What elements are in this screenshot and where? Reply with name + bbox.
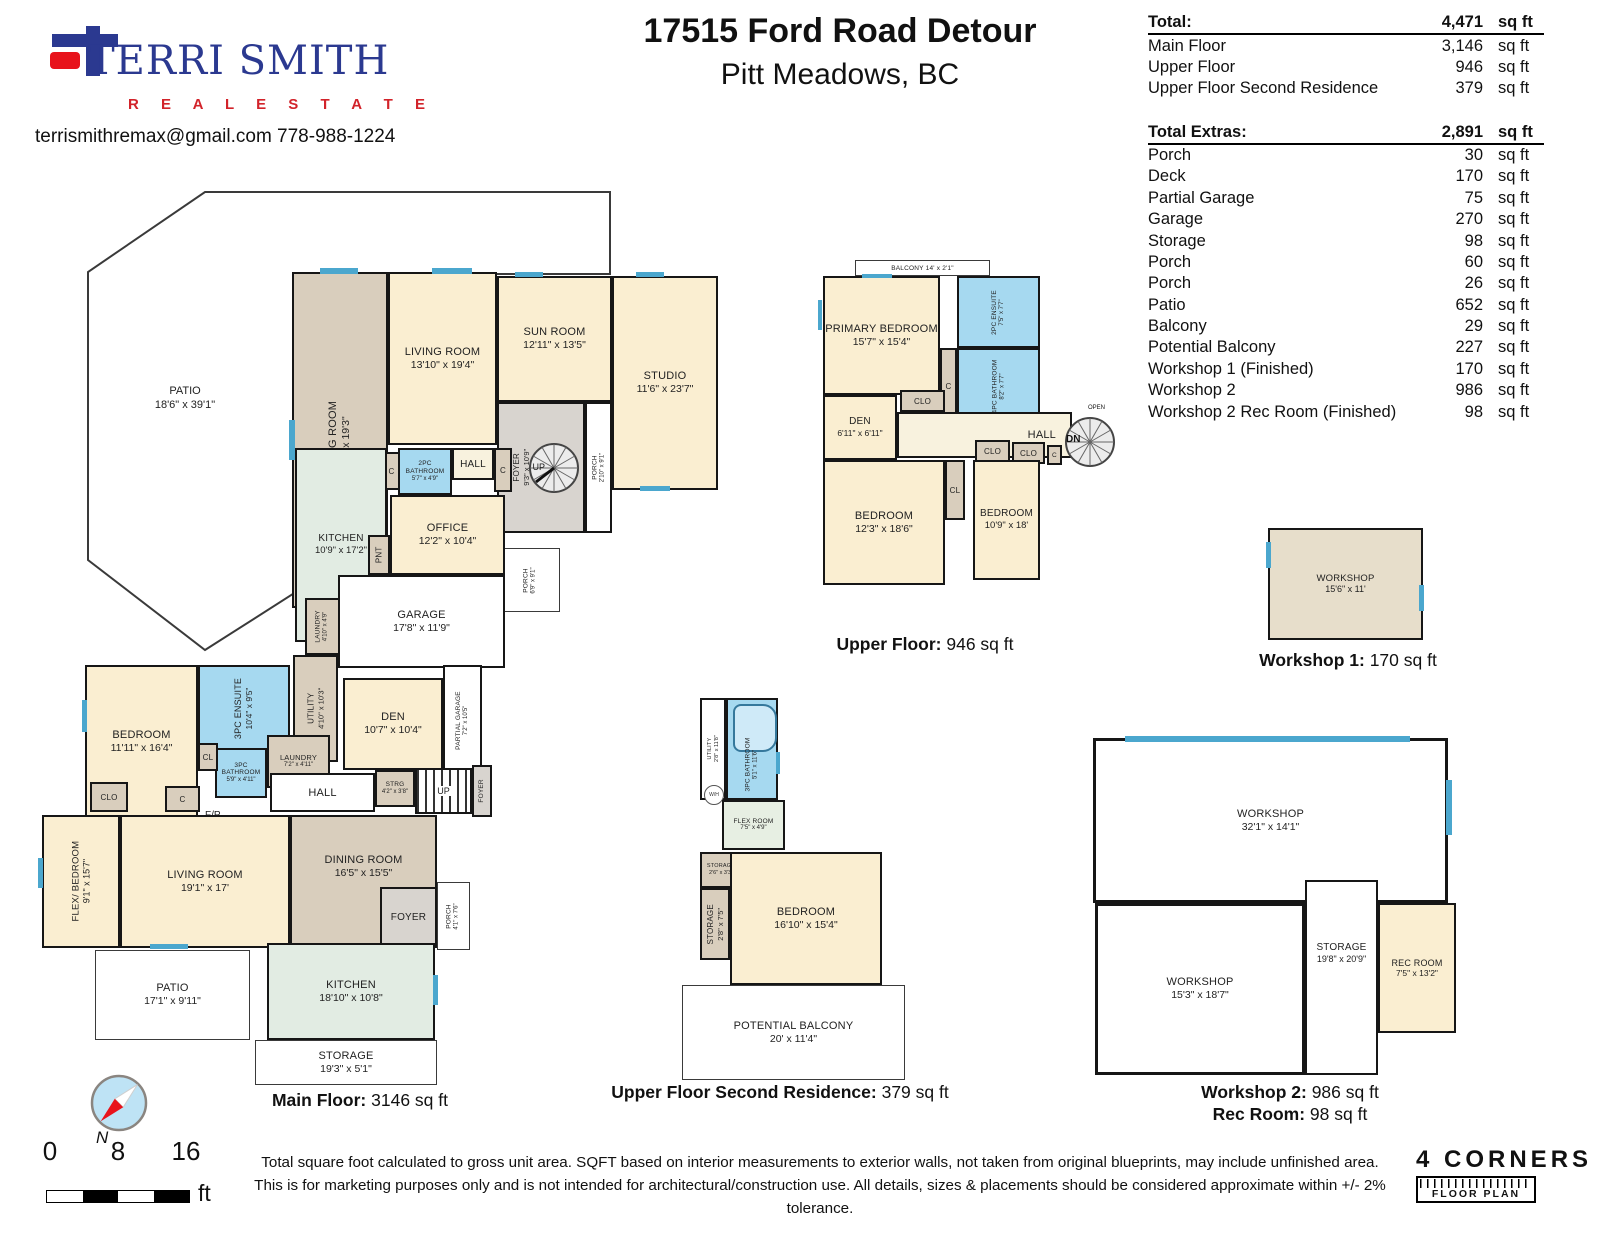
- summary-total-unit: sq ft: [1483, 13, 1544, 32]
- room-studio: STUDIO11'6" x 23'7": [612, 276, 718, 490]
- summary-row-unit: sq ft: [1483, 146, 1544, 165]
- room-partial-garage: PARTIAL GARAGE7'2" x 10'5": [443, 665, 482, 775]
- second-residence-plan: UTILITY2'8" x 11'8" 3PC BATHROOM5'1" x 1…: [680, 695, 920, 1085]
- summary-extra-row: Porch 60 sq ft: [1148, 252, 1544, 273]
- summary-row-value: 29: [1425, 317, 1483, 336]
- disclaimer-line1: Total square foot calculated to gross un…: [250, 1152, 1390, 1175]
- stair-dn-label: DN: [1066, 434, 1080, 445]
- summary-row-value: 652: [1425, 296, 1483, 315]
- room-workshop2-top: WORKSHOP32'1" x 14'1": [1093, 738, 1448, 903]
- room-patio-lower: PATIO17'1" x 9'11": [95, 950, 250, 1040]
- summary-row-value: 75: [1425, 189, 1483, 208]
- scale-tick-0: 0: [38, 1136, 62, 1167]
- room-porch-lower: PORCH4'1" x 7'6": [437, 882, 470, 950]
- room-cl-upper: CL: [945, 460, 965, 520]
- room-storage-sr: STORAGE2'8" x 7'5": [700, 888, 730, 960]
- summary-extra-row: Storage 98 sq ft: [1148, 230, 1544, 251]
- summary-extra-row: Workshop 2 986 sq ft: [1148, 380, 1544, 401]
- room-porch-angled: PORCH6'9" x 9'1": [500, 548, 560, 612]
- window-mark: [432, 268, 472, 274]
- stair-up-label: UP: [532, 462, 545, 472]
- window-mark: [862, 274, 892, 278]
- summary-extras-label: Total Extras:: [1148, 123, 1425, 142]
- room-hall-lower: HALL: [270, 773, 375, 812]
- summary-row-value: 946: [1425, 58, 1483, 77]
- workshop2-plan: WORKSHOP32'1" x 14'1" WORKSHOP15'3" x 18…: [1093, 735, 1463, 1080]
- property-city: Pitt Meadows, BC: [560, 58, 1120, 92]
- room-clo: CLO: [90, 782, 128, 812]
- main-floor-plan: PATIO 18'6" x 39'1" DINING ROOM11' x 19'…: [30, 185, 730, 1090]
- window-mark: [1125, 736, 1410, 742]
- room-workshop2-storage: STORAGE19'8" x 20'9": [1305, 880, 1378, 1075]
- summary-floor-row: Upper Floor Second Residence 379 sq ft: [1148, 78, 1544, 99]
- summary-floor-rows: Main Floor 3,146 sq ft Upper Floor 946 s…: [1148, 35, 1544, 99]
- window-mark: [38, 858, 43, 888]
- summary-row-unit: sq ft: [1483, 167, 1544, 186]
- summary-floor-row: Main Floor 3,146 sq ft: [1148, 35, 1544, 56]
- room-bedroom-upper2: BEDROOM10'9" x 18': [973, 460, 1040, 580]
- room-kitchen-lower: KITCHEN18'10" x 10'8": [267, 943, 435, 1040]
- brand-tagline: R E A L E S T A T E: [128, 96, 434, 113]
- summary-row-unit: sq ft: [1483, 79, 1544, 98]
- room-hall-upper: HALL: [452, 448, 494, 480]
- four-corners-sub: FLOOR PLAN: [1418, 1188, 1534, 1200]
- window-mark: [289, 420, 295, 460]
- summary-row-label: Porch: [1148, 274, 1425, 293]
- room-flexroom-sr: FLEX ROOM7'5" x 4'9": [722, 800, 785, 850]
- summary-row-label: Workshop 2: [1148, 381, 1425, 400]
- four-corners-ruler-icon: FLOOR PLAN: [1416, 1176, 1536, 1203]
- summary-extra-row: Workshop 2 Rec Room (Finished) 98 sq ft: [1148, 401, 1544, 422]
- window-mark: [640, 486, 670, 491]
- brand-name: TERRI SMITH: [88, 38, 389, 84]
- summary-row-value: 170: [1425, 167, 1483, 186]
- summary-row-unit: sq ft: [1483, 253, 1544, 272]
- workshop2-recroom-caption: Rec Room: 98 sq ft: [1180, 1104, 1400, 1125]
- floor-plan-page: TERRI SMITH R E A L E S T A T E terrismi…: [0, 0, 1600, 1237]
- window-mark: [1419, 585, 1424, 611]
- summary-row-label: Balcony: [1148, 317, 1425, 336]
- summary-row-value: 30: [1425, 146, 1483, 165]
- window-mark: [82, 700, 87, 732]
- room-c-upper2: C: [1047, 445, 1062, 465]
- room-foyer-stairs: FOYER: [472, 765, 492, 817]
- summary-gap: [1148, 100, 1544, 122]
- upper-floor-plan: BALCONY 14' x 2'1" PRIMARY BEDROOM15'7" …: [820, 258, 1120, 593]
- window-mark: [1266, 542, 1271, 568]
- summary-extra-row: Balcony 29 sq ft: [1148, 316, 1544, 337]
- summary-row-label: Upper Floor Second Residence: [1148, 79, 1425, 98]
- four-corners-name: 4 CORNERS: [1416, 1146, 1536, 1174]
- room-foyer-lower: FOYER: [380, 887, 437, 948]
- room-patio-upper: PATIO 18'6" x 39'1": [100, 385, 270, 413]
- brand-contact: terrismithremax@gmail.com 778-988-1224: [35, 126, 395, 148]
- summary-extras-unit: sq ft: [1483, 123, 1544, 142]
- brand-sign-red-icon: [50, 52, 80, 69]
- room-ensuite-2pc: 2PC ENSUITE7'5" x 7'7": [957, 276, 1040, 348]
- summary-row-unit: sq ft: [1483, 210, 1544, 229]
- summary-row-label: Patio: [1148, 296, 1425, 315]
- four-corners-logo: 4 CORNERS FLOOR PLAN: [1416, 1146, 1536, 1203]
- scale-bar: [46, 1190, 190, 1203]
- room-primary-bedroom: PRIMARY BEDROOM15'7" x 15'4": [823, 276, 940, 395]
- summary-row-label: Storage: [1148, 232, 1425, 251]
- summary-row-unit: sq ft: [1483, 338, 1544, 357]
- summary-extra-row: Potential Balcony 227 sq ft: [1148, 337, 1544, 358]
- scale-tick-16: 16: [168, 1136, 204, 1167]
- summary-row-value: 270: [1425, 210, 1483, 229]
- room-den-upper: DEN6'11" x 6'11": [823, 395, 897, 460]
- ruler-ticks-icon: [1420, 1179, 1532, 1188]
- summary-row-value: 379: [1425, 79, 1483, 98]
- room-closet-c2: C: [494, 448, 512, 492]
- summary-row-value: 60: [1425, 253, 1483, 272]
- summary-extra-rows: Porch 30 sq ft Deck 170 sq ft Partial Ga…: [1148, 145, 1544, 423]
- room-den: DEN10'7" x 10'4": [343, 678, 443, 770]
- window-mark: [320, 268, 358, 274]
- water-heater-icon: W/H: [704, 785, 724, 805]
- room-clo-upper1: CLO: [900, 390, 945, 412]
- window-mark: [150, 944, 188, 949]
- brand-logo: TERRI SMITH R E A L E S T A T E terrismi…: [0, 0, 460, 160]
- room-storage-lower: STORAGE19'3" x 5'1": [255, 1040, 437, 1085]
- room-bath-3pc: 3PC BATHROOM5'9" x 4'11": [215, 748, 267, 798]
- summary-row-value: 98: [1425, 403, 1483, 422]
- main-floor-caption: Main Floor: 3146 sq ft: [230, 1090, 490, 1111]
- summary-row-label: Porch: [1148, 253, 1425, 272]
- room-garage: GARAGE17'8" x 11'9": [338, 575, 505, 668]
- summary-row-label: Workshop 2 Rec Room (Finished): [1148, 403, 1425, 422]
- workshop1-plan: WORKSHOP15'6" x 11': [1268, 528, 1428, 648]
- summary-total-label: Total:: [1148, 13, 1425, 32]
- summary-total-row: Total: 4,471 sq ft: [1148, 12, 1544, 35]
- summary-row-value: 3,146: [1425, 37, 1483, 56]
- room-pantry: PNT: [368, 535, 390, 575]
- summary-row-unit: sq ft: [1483, 381, 1544, 400]
- summary-row-unit: sq ft: [1483, 296, 1544, 315]
- window-mark: [515, 272, 543, 277]
- open-label: OPEN: [1088, 405, 1105, 411]
- summary-row-unit: sq ft: [1483, 232, 1544, 251]
- workshop2-caption: Workshop 2: 986 sq ft: [1180, 1082, 1400, 1103]
- disclaimer: Total square foot calculated to gross un…: [250, 1152, 1390, 1220]
- compass-icon: [88, 1072, 150, 1134]
- scale-unit: ft: [198, 1180, 211, 1207]
- summary-row-label: Porch: [1148, 146, 1425, 165]
- summary-total-value: 4,471: [1425, 13, 1483, 32]
- summary-row-value: 227: [1425, 338, 1483, 357]
- room-strg: STRG4'2" x 3'8": [375, 770, 415, 807]
- scale-tick-8: 8: [106, 1136, 130, 1167]
- window-mark: [818, 300, 822, 330]
- room-cl: CL: [198, 743, 218, 771]
- summary-row-label: Deck: [1148, 167, 1425, 186]
- room-flex-bedroom: FLEX/ BEDROOM9'1" x 15'7": [42, 815, 120, 948]
- summary-extra-row: Porch 30 sq ft: [1148, 145, 1544, 166]
- summary-row-unit: sq ft: [1483, 58, 1544, 77]
- summary-floor-row: Upper Floor 946 sq ft: [1148, 57, 1544, 78]
- summary-row-label: Upper Floor: [1148, 58, 1425, 77]
- room-potential-balcony: POTENTIAL BALCONY20' x 11'4": [682, 985, 905, 1080]
- summary-extra-row: Garage 270 sq ft: [1148, 209, 1544, 230]
- summary-extra-row: Patio 652 sq ft: [1148, 295, 1544, 316]
- stairs-up: UP: [415, 768, 472, 814]
- upper-floor-caption: Upper Floor: 946 sq ft: [800, 634, 1050, 655]
- summary-row-label: Workshop 1 (Finished): [1148, 360, 1425, 379]
- summary-row-unit: sq ft: [1483, 37, 1544, 56]
- summary-row-unit: sq ft: [1483, 274, 1544, 293]
- second-residence-caption: Upper Floor Second Residence: 379 sq ft: [600, 1082, 960, 1103]
- room-bedroom-upper1: BEDROOM12'3" x 18'6": [823, 460, 945, 585]
- window-mark: [1446, 780, 1452, 835]
- summary-row-unit: sq ft: [1483, 403, 1544, 422]
- summary-extra-row: Workshop 1 (Finished) 170 sq ft: [1148, 359, 1544, 380]
- window-mark: [433, 975, 438, 1005]
- summary-extra-row: Partial Garage 75 sq ft: [1148, 188, 1544, 209]
- room-living-upper: LIVING ROOM13'10" x 19'4": [388, 272, 497, 445]
- room-workshop1: WORKSHOP15'6" x 11': [1268, 528, 1423, 640]
- room-closet-c3: C: [165, 786, 200, 812]
- room-office: OFFICE12'2" x 10'4": [390, 495, 505, 575]
- summary-row-value: 986: [1425, 381, 1483, 400]
- room-sunroom: SUN ROOM12'11" x 13'5": [497, 276, 612, 402]
- room-workshop2-bottom: WORKSHOP15'3" x 18'7": [1095, 903, 1305, 1075]
- summary-row-label: Main Floor: [1148, 37, 1425, 56]
- room-laundry-small: LAUNDRY4'10" x 4'9": [305, 598, 340, 655]
- room-living-lower: LIVING ROOM19'1" x 17': [120, 815, 290, 948]
- room-bath-sr: 3PC BATHROOM5'1" x 11'6": [726, 698, 778, 800]
- summary-extra-row: Porch 26 sq ft: [1148, 273, 1544, 294]
- summary-row-unit: sq ft: [1483, 189, 1544, 208]
- summary-row-unit: sq ft: [1483, 360, 1544, 379]
- summary-extras-total-row: Total Extras: 2,891 sq ft: [1148, 122, 1544, 145]
- room-bedroom-sr: BEDROOM16'10" x 15'4": [730, 852, 882, 985]
- window-mark: [776, 752, 780, 774]
- window-mark: [636, 272, 664, 277]
- summary-row-label: Potential Balcony: [1148, 338, 1425, 357]
- summary-row-unit: sq ft: [1483, 317, 1544, 336]
- workshop1-caption: Workshop 1: 170 sq ft: [1253, 650, 1443, 671]
- room-workshop2-recroom: REC ROOM7'5" x 13'2": [1378, 903, 1456, 1033]
- disclaimer-line2: This is for marketing purposes only and …: [250, 1175, 1390, 1221]
- summary-row-value: 98: [1425, 232, 1483, 251]
- room-clo-upper2: CLO: [975, 440, 1010, 462]
- room-bath-2pc: 2PC BATHROOM5'7" x 4'9": [398, 448, 452, 495]
- summary-row-label: Garage: [1148, 210, 1425, 229]
- summary-row-value: 26: [1425, 274, 1483, 293]
- summary-row-label: Partial Garage: [1148, 189, 1425, 208]
- summary-extras-value: 2,891: [1425, 123, 1483, 142]
- property-address: 17515 Ford Road Detour: [560, 12, 1120, 51]
- room-porch-side: PORCH2'10" x 9'1": [585, 402, 612, 533]
- area-summary-table: Total: 4,471 sq ft Main Floor 3,146 sq f…: [1148, 12, 1544, 423]
- summary-extra-row: Deck 170 sq ft: [1148, 166, 1544, 187]
- summary-row-value: 170: [1425, 360, 1483, 379]
